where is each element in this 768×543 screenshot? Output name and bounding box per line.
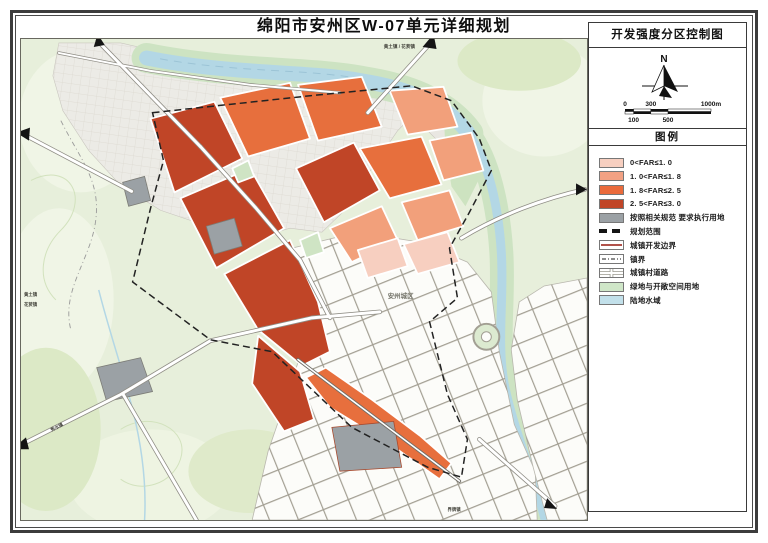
legend-item-far-18-25: 1. 8<FAR≤2. 5 [599, 185, 742, 196]
scale-tick-0: 0 [623, 101, 627, 108]
planning-map: 安州城区 黄土镇 / 花荄镇 黄土镇 花荄镇 秀水镇 界牌镇 [21, 39, 587, 520]
scale-tick-500: 500 [663, 117, 674, 124]
panel-title: 开发强度分区控制图 [589, 23, 746, 48]
planning-scope-line-icon [599, 229, 624, 233]
legend-list: 0<FAR≤1. 0 1. 0<FAR≤1. 8 1. 8<FAR≤2. 5 2… [589, 146, 746, 306]
label-city-area: 安州城区 [388, 291, 414, 300]
label-town-west-2: 花荄镇 [24, 301, 38, 308]
legend-header: 图例 [589, 129, 746, 146]
far-18-25-swatch [599, 185, 624, 195]
regulated-land-swatch [599, 213, 624, 223]
legend-item-far-0-1: 0<FAR≤1. 0 [599, 157, 742, 168]
scale-bar: 0 300 1000m 100 500 [623, 101, 721, 124]
town-road-symbol-icon [599, 268, 624, 278]
legend-item-planning-scope: 规划范围 [599, 226, 742, 237]
legend-item-water: 陆地水域 [599, 295, 742, 306]
map-canvas: 安州城区 黄土镇 / 花荄镇 黄土镇 花荄镇 秀水镇 界牌镇 [20, 38, 588, 521]
far-25-3-swatch [599, 199, 624, 209]
north-label: N [660, 54, 667, 65]
town-boundary-line-icon [599, 254, 624, 264]
north-arrow-icon [642, 65, 688, 100]
legend-item-far-1-18: 1. 0<FAR≤1. 8 [599, 171, 742, 182]
info-panel: 开发强度分区控制图 N 0 300 1000m [588, 22, 747, 512]
plan-sheet: { "header": { "title": "绵阳市安州区W-07单元详细规划… [0, 0, 768, 543]
legend-item-town-boundary: 镇界 [599, 254, 742, 265]
legend-item-development-boundary: 城镇开发边界 [599, 240, 742, 251]
far-1-18-swatch [599, 171, 624, 181]
scale-tick-1000m: 1000m [701, 101, 721, 108]
development-boundary-line-icon [599, 240, 624, 250]
legend-item-town-roads: 城镇村道路 [599, 267, 742, 278]
scale-tick-100: 100 [628, 117, 639, 124]
legend-item-regulated-land: 按照相关规范 要求执行用地 [599, 212, 742, 223]
north-scale-section: N 0 300 1000m 100 500 [589, 48, 746, 129]
scale-tick-300: 300 [645, 101, 656, 108]
label-road-destination-north: 黄土镇 / 花荄镇 [384, 43, 416, 50]
compass-scale-graphic: N 0 300 1000m 100 500 [589, 48, 746, 126]
green-space-swatch [599, 282, 624, 292]
water-swatch [599, 295, 624, 305]
legend-item-green-space: 绿地与开敞空间用地 [599, 281, 742, 292]
legend-item-far-25-3: 2. 5<FAR≤3. 0 [599, 198, 742, 209]
label-town-west-1: 黄土镇 [24, 291, 38, 298]
far-0-1-swatch [599, 158, 624, 168]
label-town-south: 界牌镇 [447, 506, 461, 513]
